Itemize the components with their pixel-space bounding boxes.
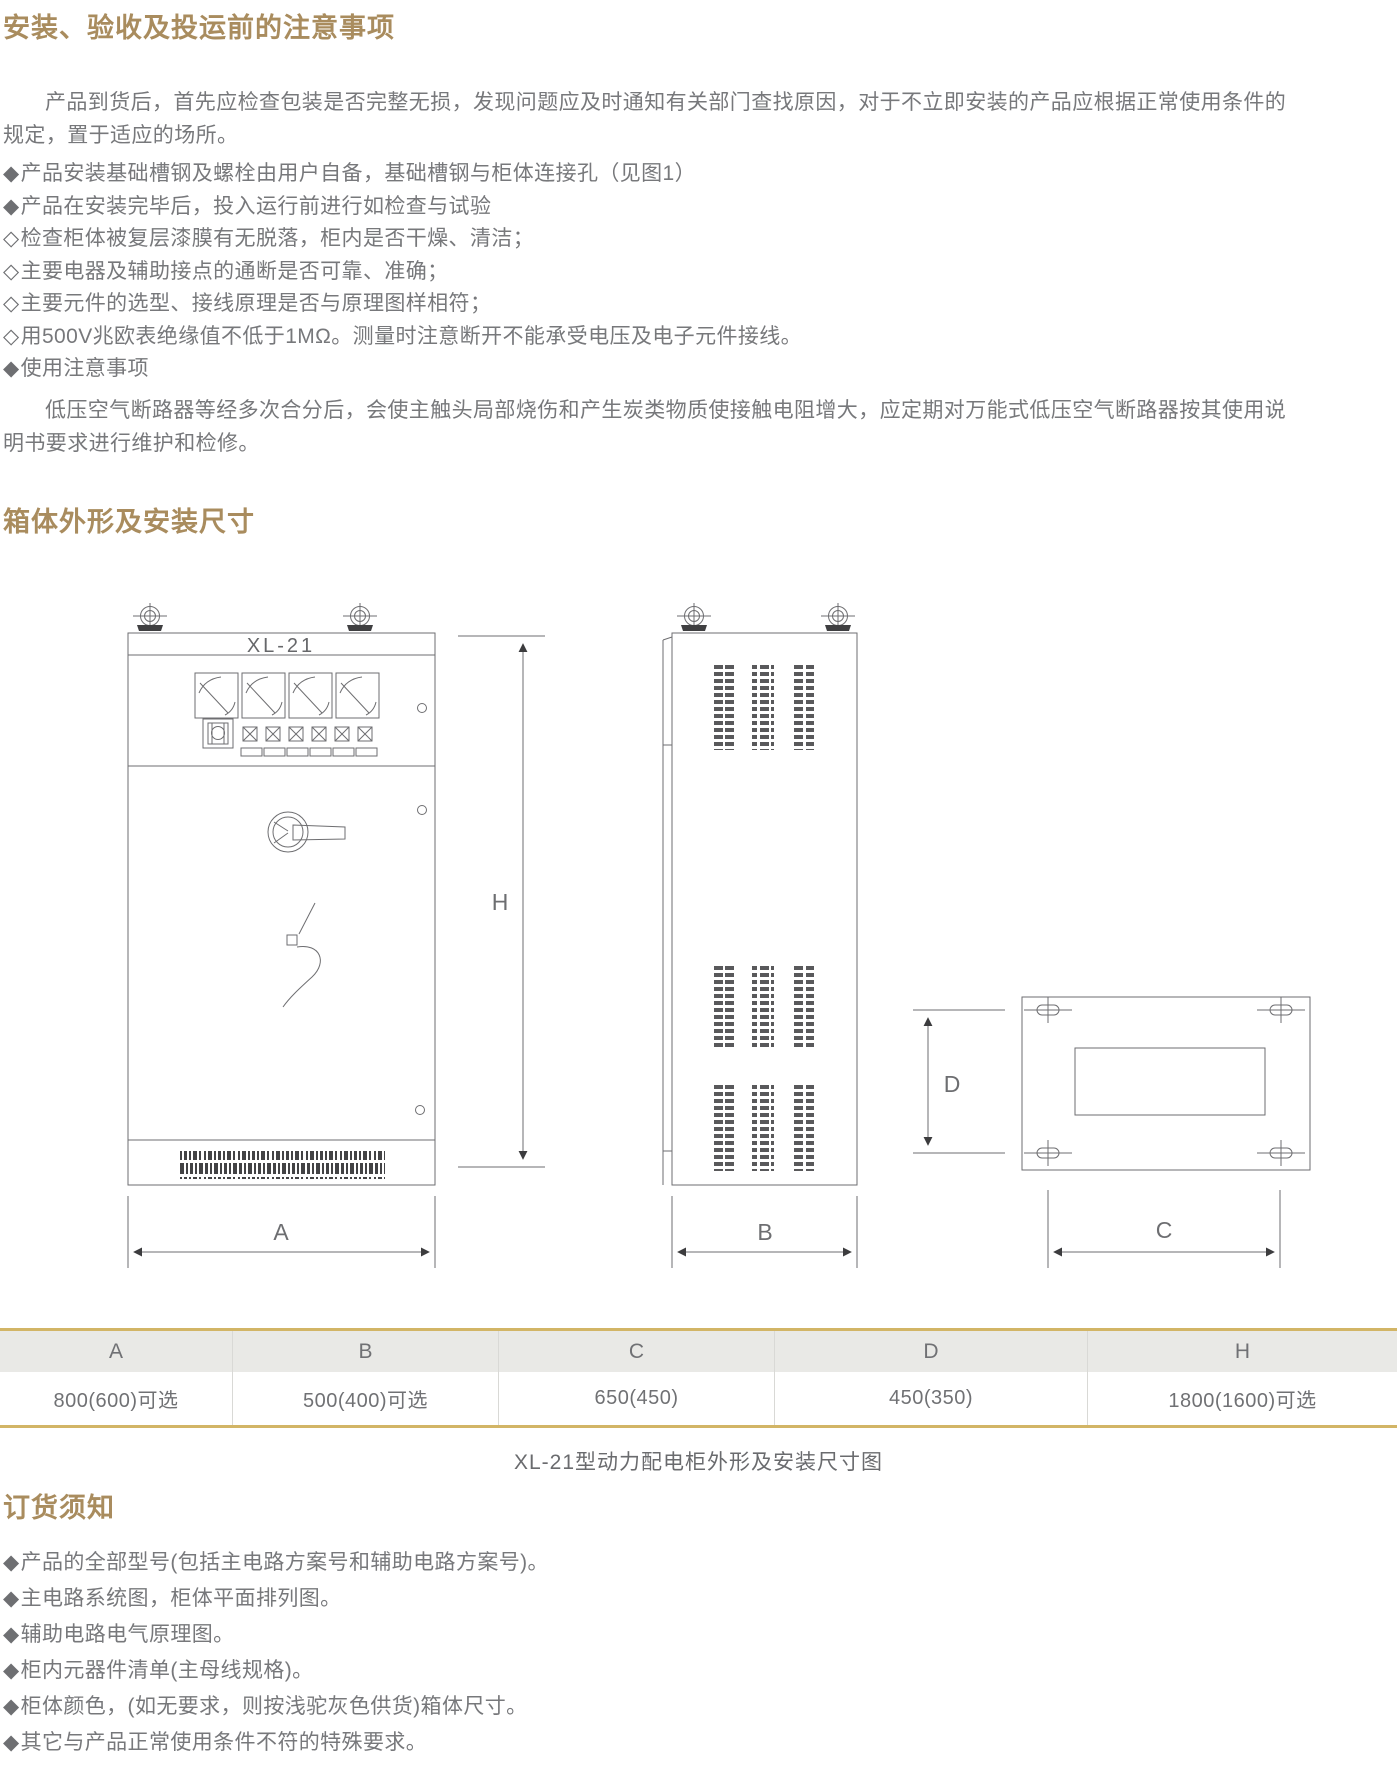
list-item-text: 柜内元器件清单(主母线规格)。 — [21, 1659, 314, 1682]
dim-label-d: D — [944, 1071, 961, 1097]
dimension-a: A — [128, 1196, 435, 1268]
installation-bullet-list: ◆产品安装基础槽钢及螺栓由用户自备，基础槽钢与柜体连接孔（见图1） ◆产品在安装… — [3, 158, 1295, 386]
dim-label-h: H — [492, 889, 509, 915]
cabinet-side-view — [663, 603, 857, 1185]
section-title-ordering: 订货须知 — [3, 1486, 115, 1525]
dimensions-table: A B C D H 800(600)可选 500(400)可选 650(450)… — [0, 1328, 1397, 1428]
list-item-text: 使用注意事项 — [21, 357, 149, 380]
list-item: ◇用500V兆欧表绝缘值不低于1MΩ。测量时注意断开不能承受电压及电子元件接线。 — [3, 321, 1295, 354]
ventilation-louvers — [713, 662, 814, 1171]
cable-entry-opening — [1075, 1048, 1265, 1115]
table-value-cell: 500(400)可选 — [233, 1372, 499, 1425]
usage-note-paragraph: 低压空气断路器等经多次合分后，会使主触头局部烧伤和产生炭类物质使接触电阻增大，应… — [3, 394, 1295, 460]
mounting-slot-icon — [1257, 1140, 1305, 1166]
table-header-cell: B — [233, 1331, 499, 1372]
list-item: ◇主要元件的选型、接线原理是否与原理图样相符； — [3, 288, 1295, 321]
door-knob — [418, 806, 427, 815]
section-title-installation-notes: 安装、验收及投运前的注意事项 — [3, 6, 395, 45]
diamond-outline-bullet-icon: ◇ — [3, 292, 20, 315]
list-item-text: 产品在安装完毕后，投入运行前进行如检查与试验 — [21, 195, 492, 218]
diamond-outline-bullet-icon: ◇ — [3, 325, 20, 348]
diamond-bullet-icon: ◆ — [3, 195, 20, 218]
mounting-slot-icon — [1024, 1140, 1072, 1166]
diamond-bullet-icon: ◆ — [3, 1695, 20, 1718]
list-item-text: 辅助电路电气原理图。 — [21, 1623, 235, 1646]
intro-paragraph: 产品到货后，首先应检查包装是否完整无损，发现问题应及时通知有关部门查找原因，对于… — [3, 86, 1295, 152]
dimension-d: D — [913, 1010, 1005, 1153]
diamond-bullet-icon: ◆ — [3, 1551, 20, 1574]
list-item: ◇主要电器及辅助接点的通断是否可靠、准确； — [3, 256, 1295, 289]
diamond-bullet-icon: ◆ — [3, 162, 20, 185]
table-value-cell: 450(350) — [775, 1372, 1088, 1425]
list-item: ◆主电路系统图，柜体平面排列图。 — [3, 1581, 1343, 1617]
list-item-text: 柜体颜色，(如无要求，则按浅驼灰色供货)箱体尺寸。 — [21, 1695, 528, 1718]
list-item-text: 其它与产品正常使用条件不符的特殊要求。 — [21, 1731, 428, 1754]
table-value-cell: 800(600)可选 — [0, 1372, 233, 1425]
list-item: ◇检查柜体被复层漆膜有无脱落，柜内是否干燥、清洁； — [3, 223, 1295, 256]
list-item: ◆产品安装基础槽钢及螺栓由用户自备，基础槽钢与柜体连接孔（见图1） — [3, 158, 1295, 191]
door-knob — [418, 704, 427, 713]
list-item-text: 主要元件的选型、接线原理是否与原理图样相符； — [21, 292, 492, 315]
lightning-mark — [283, 903, 320, 1007]
diamond-bullet-icon: ◆ — [3, 1587, 20, 1610]
table-header-cell: H — [1088, 1331, 1397, 1372]
table-header-row: A B C D H — [0, 1331, 1397, 1372]
document-page: 安装、验收及投运前的注意事项 产品到货后，首先应检查包装是否完整无损，发现问题应… — [0, 0, 1397, 1788]
table-header-cell: D — [775, 1331, 1088, 1372]
list-item: ◆产品的全部型号(包括主电路方案号和辅助电路方案号)。 — [3, 1545, 1343, 1581]
model-label: XL-21 — [247, 635, 315, 657]
lifting-eye-icon — [343, 603, 377, 631]
mounting-slot-icon — [1024, 997, 1072, 1023]
table-header-cell: A — [0, 1331, 233, 1372]
cabinet-plan-view — [1022, 997, 1310, 1170]
diamond-outline-bullet-icon: ◇ — [3, 260, 20, 283]
cabinet-dimension-drawing: XL-21 — [0, 540, 1397, 1300]
mounting-slot-icon — [1257, 997, 1305, 1023]
installation-notes-block: 产品到货后，首先应检查包装是否完整无损，发现问题应及时通知有关部门查找原因，对于… — [3, 86, 1295, 460]
diamond-bullet-icon: ◆ — [3, 1731, 20, 1754]
list-item: ◆产品在安装完毕后，投入运行前进行如检查与试验 — [3, 191, 1295, 224]
diamond-bullet-icon: ◆ — [3, 1623, 20, 1646]
lifting-eye-icon — [133, 603, 167, 631]
list-item: ◆柜体颜色，(如无要求，则按浅驼灰色供货)箱体尺寸。 — [3, 1689, 1343, 1725]
dimension-b: B — [672, 1196, 857, 1268]
lifting-eye-icon — [821, 603, 855, 631]
dim-label-a: A — [273, 1219, 289, 1245]
door-rotary-handle — [268, 812, 345, 852]
diamond-bullet-icon: ◆ — [3, 1659, 20, 1682]
cabinet-front-view: XL-21 — [128, 603, 435, 1185]
ordering-bullet-list: ◆产品的全部型号(包括主电路方案号和辅助电路方案号)。 ◆主电路系统图，柜体平面… — [3, 1545, 1343, 1761]
list-item: ◆柜内元器件清单(主母线规格)。 — [3, 1653, 1343, 1689]
list-item: ◆辅助电路电气原理图。 — [3, 1617, 1343, 1653]
lifting-eye-icon — [677, 603, 711, 631]
dimension-c: C — [1048, 1190, 1280, 1268]
list-item: ◆其它与产品正常使用条件不符的特殊要求。 — [3, 1725, 1343, 1761]
label-plates — [241, 748, 377, 756]
list-item: ◆使用注意事项 — [3, 353, 1295, 386]
door-knob — [416, 1106, 425, 1115]
door-edge — [663, 637, 672, 1185]
diamond-outline-bullet-icon: ◇ — [3, 227, 20, 250]
table-value-cell: 1800(1600)可选 — [1088, 1372, 1397, 1425]
list-item-text: 检查柜体被复层漆膜有无脱落，柜内是否干燥、清洁； — [21, 227, 535, 250]
figure-caption: XL-21型动力配电柜外形及安装尺寸图 — [0, 1446, 1397, 1476]
list-item-text: 用500V兆欧表绝缘值不低于1MΩ。测量时注意断开不能承受电压及电子元件接线。 — [21, 325, 803, 348]
indicator-lamps — [243, 727, 372, 741]
list-item-text: 主电路系统图，柜体平面排列图。 — [21, 1587, 342, 1610]
dimension-h: H — [458, 636, 545, 1167]
dim-label-b: B — [757, 1219, 772, 1245]
panel-meters — [195, 673, 379, 718]
list-item-text: 产品的全部型号(包括主电路方案号和辅助电路方案号)。 — [21, 1551, 549, 1574]
panel-switches — [203, 719, 377, 756]
table-value-row: 800(600)可选 500(400)可选 650(450) 450(350) … — [0, 1372, 1397, 1425]
section-title-dimensions: 箱体外形及安装尺寸 — [3, 500, 255, 539]
table-header-cell: C — [499, 1331, 775, 1372]
table-value-cell: 650(450) — [499, 1372, 775, 1425]
list-item-text: 主要电器及辅助接点的通断是否可靠、准确； — [21, 260, 449, 283]
diamond-bullet-icon: ◆ — [3, 357, 20, 380]
dim-label-c: C — [1156, 1217, 1173, 1243]
list-item-text: 产品安装基础槽钢及螺栓由用户自备，基础槽钢与柜体连接孔（见图1） — [21, 162, 696, 185]
ventilation-grille — [180, 1151, 385, 1179]
